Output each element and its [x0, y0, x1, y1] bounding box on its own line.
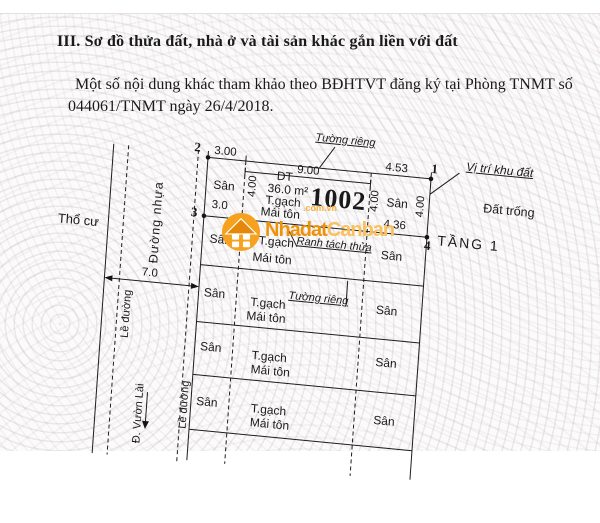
metal-roof-label-r2: Mái tôn: [252, 251, 292, 267]
note-line-1: Một số nội dung khác tham khảo theo BĐHT…: [75, 76, 600, 94]
yard-label-r3-right: Sân: [376, 304, 398, 318]
point-3-label: 3: [191, 205, 198, 219]
residential-land-label: Thổ cư: [57, 211, 99, 228]
row-line-2: [201, 265, 424, 286]
dim-4-36: 4.36: [383, 219, 406, 233]
corner-dot-3: [201, 213, 206, 218]
yard-label-r1-right: Sân: [386, 196, 408, 210]
yard-label-r5-right: Sân: [373, 414, 395, 428]
yard-label-r3-left: Sân: [204, 286, 226, 300]
dim-3-00: 3.00: [214, 146, 237, 160]
dim-4-53: 4.53: [385, 162, 408, 176]
metal-roof-label-r1: Mái tôn: [260, 205, 300, 221]
arrowhead-right: [191, 283, 199, 290]
yard-building-divider-dashed: [225, 161, 246, 464]
parcel-left-boundary: [187, 157, 208, 460]
building-yard-divider-dashed: [350, 173, 371, 476]
site-plan-diagram: Thổ cư Đường nhựa Lề đường 7.0 Đ. Vườn L…: [72, 140, 600, 523]
yard-label-r5-left: Sân: [196, 395, 218, 409]
parcel-right-boundary: [410, 179, 431, 480]
depth-dim-c: 4.00: [415, 195, 427, 217]
street-direction-arrow-line: [145, 392, 147, 422]
depth-dim-b: 4.00: [369, 190, 381, 212]
dim-3-0: 3.0: [211, 200, 228, 213]
brick-wall-label-r2: T.gạch: [258, 234, 294, 249]
point-1-label: 1: [431, 162, 438, 176]
section-title: III. Sơ đồ thửa đất, nhà ở và tài sản kh…: [57, 33, 600, 51]
row-line-5: [189, 429, 412, 450]
yard-label-r2-left: Sân: [209, 232, 231, 246]
depth-dim-a: 4.00: [247, 175, 259, 197]
metal-roof-label-r4: Mái tôn: [250, 363, 290, 379]
point-4-label: 4: [424, 239, 431, 253]
road-width-dim: 7.0: [141, 267, 158, 280]
metal-roof-label-r5: Mái tôn: [250, 416, 290, 432]
metal-roof-label-r3: Mái tôn: [246, 309, 286, 325]
yard-label-r4-right: Sân: [375, 356, 397, 370]
point-2-label: 2: [194, 140, 201, 154]
dim-9-00: 9.00: [297, 165, 320, 179]
parcel-number: 1002: [310, 184, 368, 215]
corner-dot-2: [206, 155, 211, 160]
yard-label-r1-left: Sân: [213, 179, 235, 193]
yard-label-r2-right: Sân: [380, 249, 402, 263]
corner-dot-1: [429, 176, 434, 181]
row-line-3: [197, 322, 420, 343]
yard-label-r4-left: Sân: [200, 340, 222, 354]
note-line-2: 044061/TNMT ngày 26/4/2018.: [68, 98, 600, 116]
row-line-4: [193, 374, 416, 395]
arrowhead-left: [104, 275, 112, 282]
